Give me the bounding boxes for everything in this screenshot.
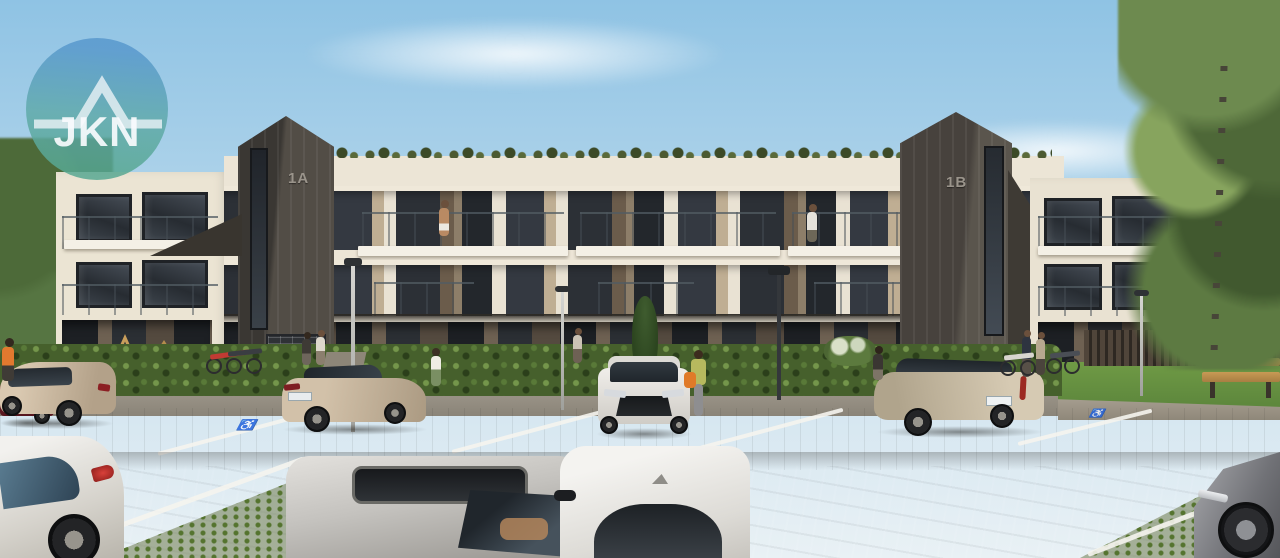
taillight xyxy=(98,383,111,392)
person-body xyxy=(439,208,449,236)
side-mirror xyxy=(554,490,576,501)
license-plate xyxy=(288,392,312,401)
person-head xyxy=(318,330,325,337)
grey-coupe-foreground-right xyxy=(1194,452,1280,558)
cloud xyxy=(300,18,730,90)
car-wheel xyxy=(990,404,1014,428)
person-body xyxy=(573,335,582,363)
white-car-foreground xyxy=(560,446,750,558)
bike-wheel xyxy=(1064,358,1080,374)
balcony-glass-railing xyxy=(580,212,776,250)
bike-wheel xyxy=(1046,358,1062,374)
bike-rack-right xyxy=(994,344,1078,380)
lamp-head xyxy=(555,286,570,292)
person-head xyxy=(304,332,311,339)
balcony-glass-railing xyxy=(814,282,910,316)
car-shadow xyxy=(876,426,1044,438)
silver-car-foreground xyxy=(286,456,588,558)
person-body xyxy=(316,337,325,365)
lamp-head xyxy=(1134,290,1149,296)
orange-shopping-bag xyxy=(684,372,696,388)
lamp-head xyxy=(344,258,362,266)
car-wheel xyxy=(600,416,618,434)
pedestrian xyxy=(314,330,328,368)
lamppost xyxy=(777,272,781,400)
car-wheel xyxy=(56,400,82,426)
car-wheel xyxy=(384,402,406,424)
lamppost xyxy=(561,292,564,410)
balcony-slab xyxy=(576,246,780,256)
person-body xyxy=(302,339,311,365)
bike-wheel xyxy=(246,358,262,374)
person-body xyxy=(2,347,14,381)
person-head xyxy=(875,346,883,354)
car-wheel xyxy=(48,514,100,558)
white-sedan-foreground-left xyxy=(0,436,124,558)
car-wheel xyxy=(304,406,330,432)
person-body xyxy=(807,212,817,242)
bike-wheel xyxy=(226,358,242,374)
balcony-glass-railing xyxy=(362,212,564,250)
bike-wheel xyxy=(206,358,222,374)
person-legs xyxy=(694,384,703,416)
person-head xyxy=(1038,332,1045,339)
bench-leg xyxy=(1266,382,1271,398)
balcony-slab xyxy=(358,246,568,256)
stair-tower-1b: 1B xyxy=(900,112,1012,372)
white-sedan-front xyxy=(598,356,690,442)
car-wheel xyxy=(2,396,22,416)
bench-seat xyxy=(1202,372,1280,382)
flowering-shrub xyxy=(824,336,876,366)
bike-frame xyxy=(1050,350,1080,358)
rear-window xyxy=(594,504,722,558)
person-on-terrace xyxy=(571,328,585,368)
man-on-balcony xyxy=(436,200,452,244)
person-head xyxy=(1024,330,1031,337)
car-wheel xyxy=(904,408,932,436)
person-head xyxy=(441,200,449,208)
woman-on-bench xyxy=(870,346,886,392)
developer-logo-watermark: JKN xyxy=(26,38,168,180)
person-head xyxy=(5,338,14,347)
woman-in-orange xyxy=(0,338,18,390)
woman-with-orange-bag xyxy=(686,350,712,422)
lamp-head xyxy=(768,266,790,275)
bike-wheel xyxy=(1000,360,1016,376)
woman-on-balcony xyxy=(804,204,820,250)
front-grille xyxy=(616,396,672,416)
tower-label-1a: 1A xyxy=(288,170,309,187)
lamppost xyxy=(1140,296,1143,396)
bench-leg xyxy=(1210,382,1215,398)
person-body xyxy=(431,356,441,386)
car-wheel xyxy=(1218,502,1274,558)
woman-by-hedge xyxy=(428,348,444,392)
logo-text: JKN xyxy=(26,108,168,156)
tower-label-1b: 1B xyxy=(946,174,967,191)
car-interior xyxy=(500,518,548,540)
person-head xyxy=(575,328,582,335)
pedestrian xyxy=(300,332,314,368)
person-head xyxy=(432,348,440,356)
bike-wheel xyxy=(1020,360,1036,376)
windshield xyxy=(610,362,678,382)
bike-frame xyxy=(228,348,262,357)
person-head xyxy=(694,350,703,359)
beige-sedan xyxy=(282,364,426,438)
balcony-glass-railing xyxy=(62,284,218,315)
person-head xyxy=(809,204,817,212)
bike-rack-left xyxy=(202,342,266,376)
stairwell-window xyxy=(250,148,268,330)
architectural-rendering-scene: 1A 1B ♿ ♿ xyxy=(0,0,1280,558)
person-body xyxy=(873,354,883,380)
stairwell-window xyxy=(984,146,1004,336)
car-shadow xyxy=(282,424,428,435)
balcony-glass-railing xyxy=(374,282,474,316)
